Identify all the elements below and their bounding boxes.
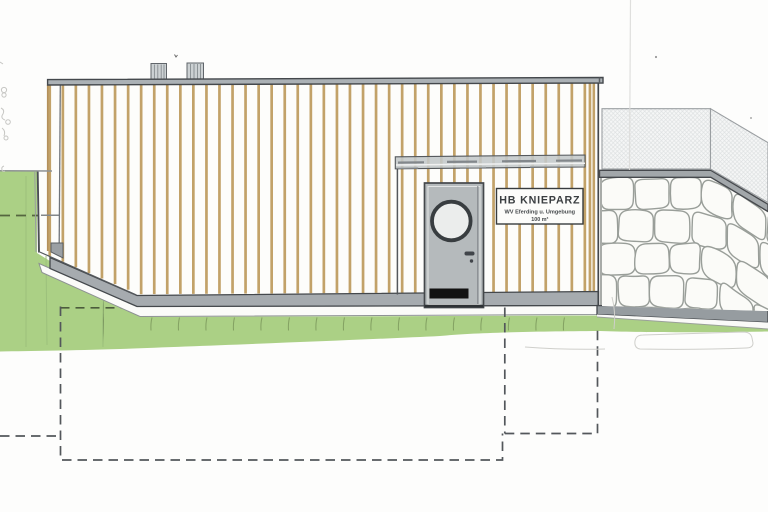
- svg-text:100 m³: 100 m³: [531, 217, 548, 223]
- svg-text:HB KNIEPARZ: HB KNIEPARZ: [499, 195, 580, 207]
- svg-text:WV Eferding u. Umgebung: WV Eferding u. Umgebung: [505, 210, 576, 216]
